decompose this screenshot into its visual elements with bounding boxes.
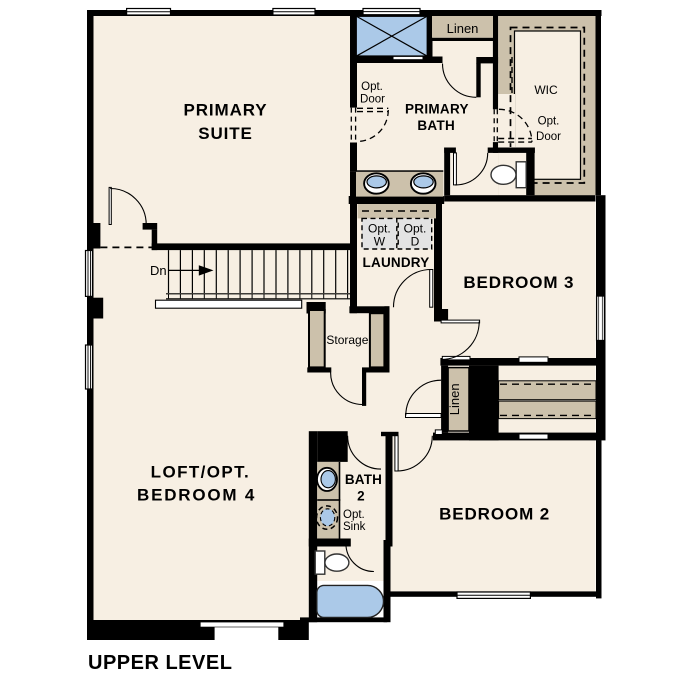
svg-text:Dn: Dn [150,263,167,278]
svg-text:PRIMARY: PRIMARY [405,102,469,117]
svg-text:BEDROOM 4: BEDROOM 4 [137,486,256,505]
svg-text:LOFT/OPT.: LOFT/OPT. [151,463,250,482]
svg-text:Linen: Linen [447,21,479,36]
svg-text:BEDROOM 3: BEDROOM 3 [463,273,574,292]
svg-text:Opt.: Opt. [538,116,560,128]
svg-text:Door: Door [536,131,561,143]
svg-text:Opt.: Opt. [404,222,427,236]
svg-text:SUITE: SUITE [198,124,253,143]
svg-text:Opt.: Opt. [361,81,383,93]
svg-text:UPPER LEVEL: UPPER LEVEL [88,652,232,674]
svg-text:WIC: WIC [534,83,558,97]
svg-text:Linen: Linen [447,383,462,415]
svg-text:Door: Door [360,94,385,106]
svg-text:PRIMARY: PRIMARY [183,101,267,120]
svg-text:BATH: BATH [345,472,382,487]
svg-text:Opt.: Opt. [368,222,391,236]
svg-text:BATH: BATH [417,118,455,133]
svg-text:LAUNDRY: LAUNDRY [363,255,430,270]
svg-text:Opt.: Opt. [343,509,365,521]
svg-text:D: D [411,235,420,249]
svg-text:W: W [374,235,386,249]
svg-text:2: 2 [357,489,365,504]
svg-text:Sink: Sink [343,521,366,533]
svg-text:BEDROOM 2: BEDROOM 2 [439,505,550,524]
svg-text:Storage: Storage [326,333,368,347]
